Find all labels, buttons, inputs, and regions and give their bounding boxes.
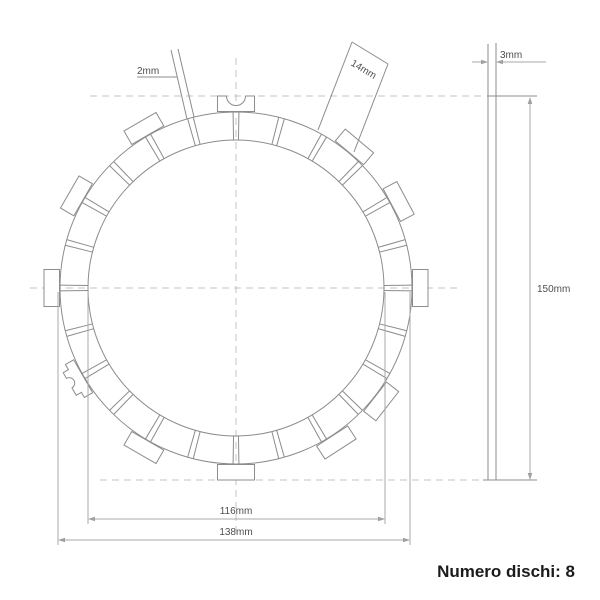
drive-tab	[383, 182, 414, 222]
pad-slot-line	[365, 203, 389, 217]
drawing-svg: 3mm 150mm 116mm 138mm	[0, 0, 600, 600]
dimension-thickness: 3mm	[472, 50, 546, 64]
drive-tab	[218, 465, 255, 481]
drive-tab	[124, 432, 164, 464]
drive-tab	[44, 270, 60, 307]
callout-slot-width: 2mm	[137, 49, 194, 119]
pad-slot-line	[145, 415, 159, 439]
drive-tab	[317, 426, 356, 459]
pad-slot-line	[82, 360, 106, 374]
pad-slot-line	[85, 197, 109, 211]
arrowhead	[378, 517, 385, 522]
dimension-overall-diameter: 150mm	[528, 97, 571, 480]
pad-slot-line	[85, 364, 109, 378]
arrowhead	[528, 97, 533, 104]
slot-width-label: 2mm	[137, 66, 159, 77]
arrowhead	[528, 473, 533, 480]
arrowhead	[403, 538, 410, 543]
friction-diameter-label: 138mm	[219, 527, 252, 538]
pad-slot-line	[363, 364, 387, 378]
arrowhead	[88, 517, 95, 522]
leader-line	[318, 42, 352, 130]
disc-count-note: Numero dischi: 8	[437, 562, 575, 582]
disc-side-view	[483, 43, 537, 480]
pad-slot-line	[151, 417, 165, 441]
drive-tab	[60, 176, 92, 216]
drive-tab	[124, 112, 164, 144]
arrowhead	[481, 60, 488, 65]
pad-slot-line	[363, 197, 387, 211]
drive-tab	[413, 270, 429, 307]
inner-diameter-label: 116mm	[220, 506, 253, 517]
tab-width-label: 14mm	[349, 58, 378, 82]
pad-slot-line	[308, 134, 322, 158]
pad-slot-line	[312, 137, 326, 161]
arrowhead	[58, 538, 65, 543]
pad-slot-line	[145, 137, 159, 161]
leader-line	[178, 49, 194, 117]
pad-slot-line	[82, 203, 106, 217]
pad-slot-line	[312, 415, 326, 439]
thickness-label: 3mm	[500, 50, 522, 61]
leader-line	[171, 50, 187, 119]
clutch-disc-technical-drawing: 3mm 150mm 116mm 138mm	[0, 0, 600, 600]
pad-slot-line	[365, 360, 389, 374]
pad-slot-line	[151, 134, 165, 158]
overall-diameter-label: 150mm	[537, 284, 570, 295]
pad-slot-line	[308, 417, 322, 441]
